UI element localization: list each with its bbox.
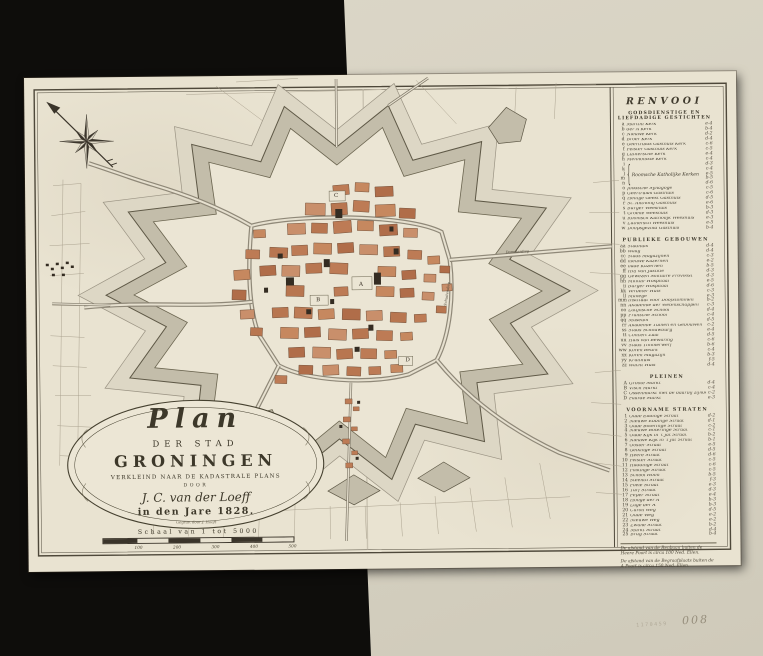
- legend-note: De afstand van de Renbaan buiten de Heer…: [621, 546, 717, 557]
- legend-section-header: LIEFDADIGE GESTICHTEN: [616, 115, 712, 121]
- legend-notes: De afstand van de Renbaan buiten de Heer…: [620, 543, 716, 570]
- legend-section-header: PUBLIEKE GEBOUWEN: [618, 236, 714, 243]
- plein-letter: C: [334, 193, 338, 199]
- stamp-code: 008: [682, 613, 710, 627]
- scanned-map-page: { "stamp": {"number": "1170459", "code":…: [0, 0, 763, 656]
- plein-letter: B: [316, 297, 320, 303]
- legend-section-header: PLEINEN: [619, 373, 715, 380]
- legend-body: GODSDIENSTIGE ENLIEFDADIGE GESTICHTENaMa…: [616, 110, 716, 538]
- title-cartouche: Plan DER STAD GRONINGEN VERKLEIND NAAR D…: [67, 401, 324, 526]
- scale-tick: 300: [211, 544, 219, 549]
- legend-item: hMennoniste Kerkc-4: [617, 157, 713, 163]
- compass-rose: [46, 101, 117, 169]
- map-title-script: Plan: [67, 401, 323, 437]
- legend-group-roomsche-kerken: iklmn{Roomsche Katholijke Kerkend-3c-4e-…: [617, 162, 713, 188]
- scale-tick: 400: [250, 544, 258, 549]
- scale-tick: 500: [288, 543, 296, 548]
- legend-note: De afstand van de Begraafplaats buiten d…: [621, 559, 717, 570]
- title-year: in den Jare 1828.: [68, 505, 324, 519]
- title-city: GRONINGEN: [68, 451, 324, 473]
- scale-tick: 100: [134, 545, 142, 550]
- legend-title: RENVOOI: [616, 95, 712, 107]
- scale-label: Schaal van 1 tot 5000: [82, 527, 314, 536]
- title-subtitle: VERKLEIND NAAR DE KADASTRALE PLANS: [68, 474, 324, 483]
- legend-item: wDoopsgezind Gasthuisb-4: [617, 226, 713, 232]
- scale-tick: 200: [173, 545, 181, 550]
- title-der-stad: DER STAD: [67, 438, 323, 451]
- map-sheet: ABCD SchuitendiepDamsterdiep Plan DER ST…: [24, 71, 741, 572]
- legend-renvooi: RENVOOI GODSDIENSTIGE ENLIEFDADIGE GESTI…: [616, 87, 716, 546]
- legend-item: 25Brug Straatb-4: [620, 533, 716, 539]
- outwork-south-east: [418, 462, 470, 492]
- title-author: J. C. van der Loeff: [68, 489, 324, 506]
- legend-item: DPaarde Markte-3: [619, 396, 715, 402]
- stamp-number: 1170459: [636, 621, 668, 629]
- plein-letter: D: [405, 357, 410, 363]
- scale-block: Schaal van 1 tot 5000 100200300400500: [82, 527, 314, 550]
- legend-item: zzWacht Huisd-4: [619, 363, 715, 369]
- legend-section-header: VOORNAME STRATEN: [619, 406, 715, 413]
